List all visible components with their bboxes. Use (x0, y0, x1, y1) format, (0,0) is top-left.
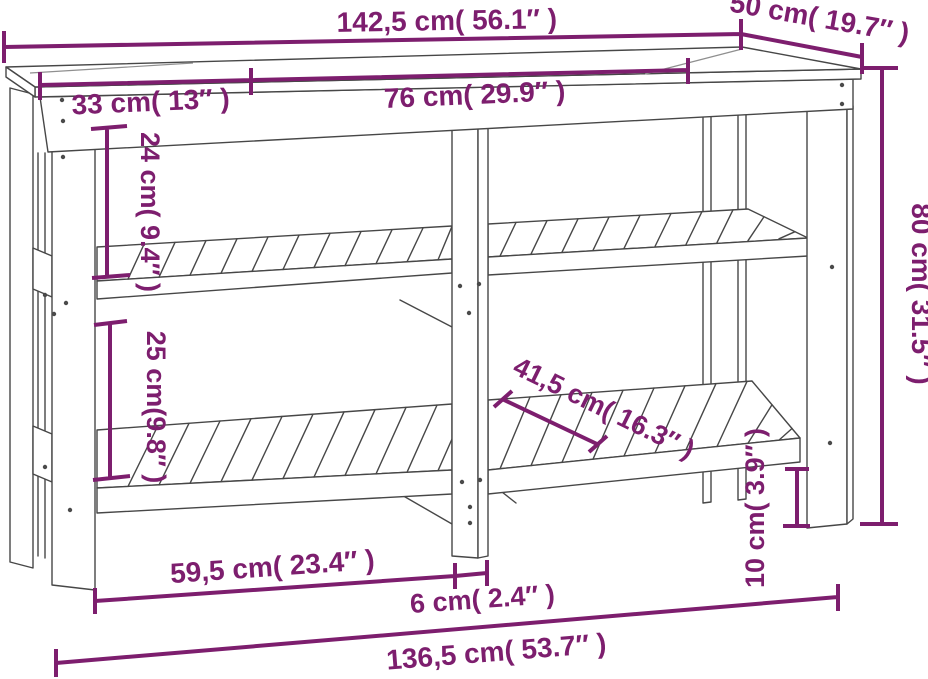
front-right-leg (807, 106, 853, 528)
back-left-leg (38, 153, 45, 558)
dim-base-width-label: 136,5 cm( 53.7″ ) (385, 627, 607, 675)
dim-leg-width: 6 cm( 2.4″ ) (409, 560, 556, 619)
dim-shelf-span-left: 59,5 cm( 23.4″ ) (95, 544, 455, 614)
dim-height-label: 80 cm( 31.5″ ) (906, 203, 928, 385)
workbench-dimension-diagram: 142,5 cm( 56.1″ ) 50 cm( 19.7″ ) 33 cm( … (0, 0, 928, 679)
dim-top-width-label: 142,5 cm( 56.1″ ) (336, 3, 557, 38)
dim-leg-width-label: 6 cm( 2.4″ ) (409, 579, 556, 619)
front-left-leg (10, 88, 95, 590)
dim-height: 80 cm( 31.5″ ) (860, 68, 928, 524)
dim-shelf-to-shelf-label: 25 cm(9.8″ ) (141, 331, 171, 484)
dim-top-depth-label: 50 cm( 19.7″ ) (728, 0, 912, 49)
middle-leg (452, 112, 488, 558)
dim-foot-clearance-label: 10 cm( 3.9″ ) (740, 428, 770, 588)
dim-top-to-shelf-label: 24 cm( 9.4″ ) (135, 132, 165, 292)
